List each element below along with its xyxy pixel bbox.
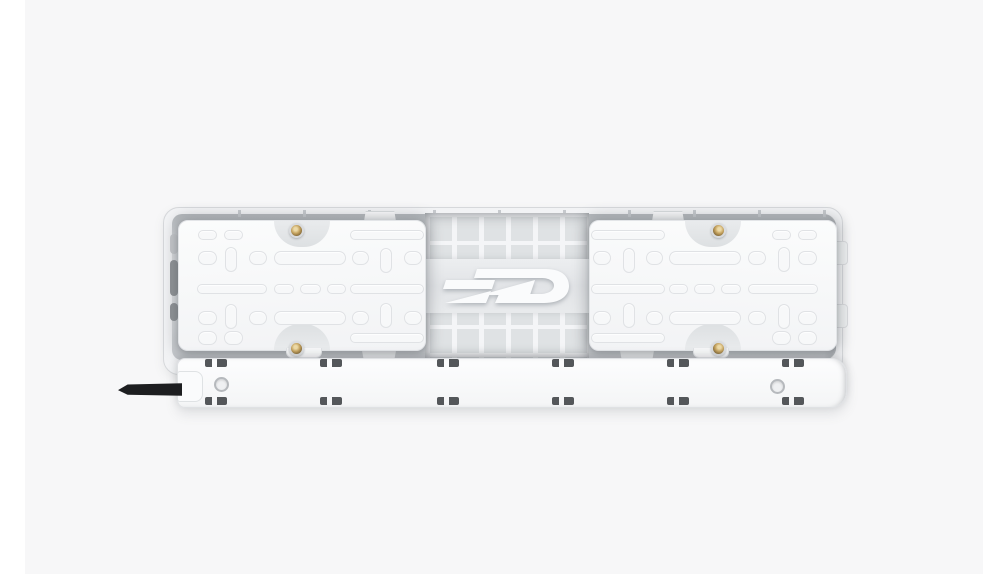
plate-slot xyxy=(772,230,791,240)
rail-clip xyxy=(667,359,689,367)
plate-slot xyxy=(274,251,346,265)
rail-clip xyxy=(437,397,459,405)
plate-slot xyxy=(646,311,663,325)
plate-slot xyxy=(198,251,217,265)
side-vent-slot xyxy=(170,303,178,321)
rail-screw-hole xyxy=(214,377,229,392)
plate-slot xyxy=(623,303,635,328)
logo-panel xyxy=(425,259,589,313)
plate-slot xyxy=(224,230,243,240)
plate-slot xyxy=(721,284,741,294)
plate-slot xyxy=(300,284,321,294)
plate-slot xyxy=(669,284,688,294)
plate-slot xyxy=(274,311,346,325)
plate-slot xyxy=(249,251,267,265)
plate-slot xyxy=(380,303,392,328)
plate-slot xyxy=(224,331,243,345)
plate-slot xyxy=(198,230,217,240)
plate-slot xyxy=(798,311,817,325)
rail-clip xyxy=(205,397,227,405)
plate-slot xyxy=(404,311,422,325)
plate-slot xyxy=(646,251,663,265)
rail-clip xyxy=(667,397,689,405)
plate-slot xyxy=(694,284,715,294)
rail-clip xyxy=(552,359,574,367)
power-cable xyxy=(118,383,182,396)
plate-slot xyxy=(350,230,424,240)
plate-slot xyxy=(778,304,790,329)
plate-slot xyxy=(198,311,217,325)
mounting-plate-left xyxy=(178,220,426,351)
plate-slot xyxy=(380,248,392,273)
plate-slot xyxy=(669,311,741,325)
plate-slot xyxy=(352,251,369,265)
side-vent-slot xyxy=(170,234,178,254)
plate-slot xyxy=(798,331,817,345)
plate-slot xyxy=(591,333,665,343)
plate-slot xyxy=(623,248,635,273)
rail-clip xyxy=(782,359,804,367)
plate-slot xyxy=(748,311,766,325)
plate-slot xyxy=(772,331,791,345)
plate-slot xyxy=(225,247,237,272)
plate-slot xyxy=(197,284,267,294)
power-strip-rear xyxy=(125,200,905,415)
rail-screw-hole xyxy=(770,379,785,394)
rail-clip xyxy=(437,359,459,367)
brass-screw xyxy=(289,341,304,356)
rail-clip xyxy=(205,359,227,367)
plate-slot xyxy=(778,247,790,272)
plate-slot xyxy=(274,284,294,294)
brass-screw xyxy=(711,223,726,238)
plate-slot xyxy=(249,311,267,325)
plate-slot xyxy=(798,251,817,265)
plate-slot xyxy=(327,284,346,294)
plate-slot xyxy=(669,251,741,265)
bottom-rail xyxy=(177,358,847,408)
side-vent-slot xyxy=(170,260,178,296)
mounting-plate-right xyxy=(589,220,837,351)
plate-slot xyxy=(352,311,369,325)
plate-slot xyxy=(225,304,237,329)
ssd-logo-icon xyxy=(443,268,571,304)
rail-clip xyxy=(552,397,574,405)
product-photo-stage xyxy=(0,0,1000,574)
plate-slot xyxy=(748,251,766,265)
brass-screw xyxy=(289,223,304,238)
plate-slot xyxy=(591,230,665,240)
plate-slot xyxy=(404,251,422,265)
brass-screw xyxy=(711,341,726,356)
plate-slot xyxy=(350,284,424,294)
rail-clip xyxy=(782,397,804,405)
plate-slot xyxy=(591,284,665,294)
plate-slot xyxy=(748,284,818,294)
plate-slot xyxy=(593,311,611,325)
device-body xyxy=(163,207,843,375)
plate-slot xyxy=(350,333,424,343)
rail-clip xyxy=(320,397,342,405)
plate-slot xyxy=(798,230,817,240)
plate-slot xyxy=(198,331,217,345)
plate-slot xyxy=(593,251,611,265)
rail-clip xyxy=(320,359,342,367)
